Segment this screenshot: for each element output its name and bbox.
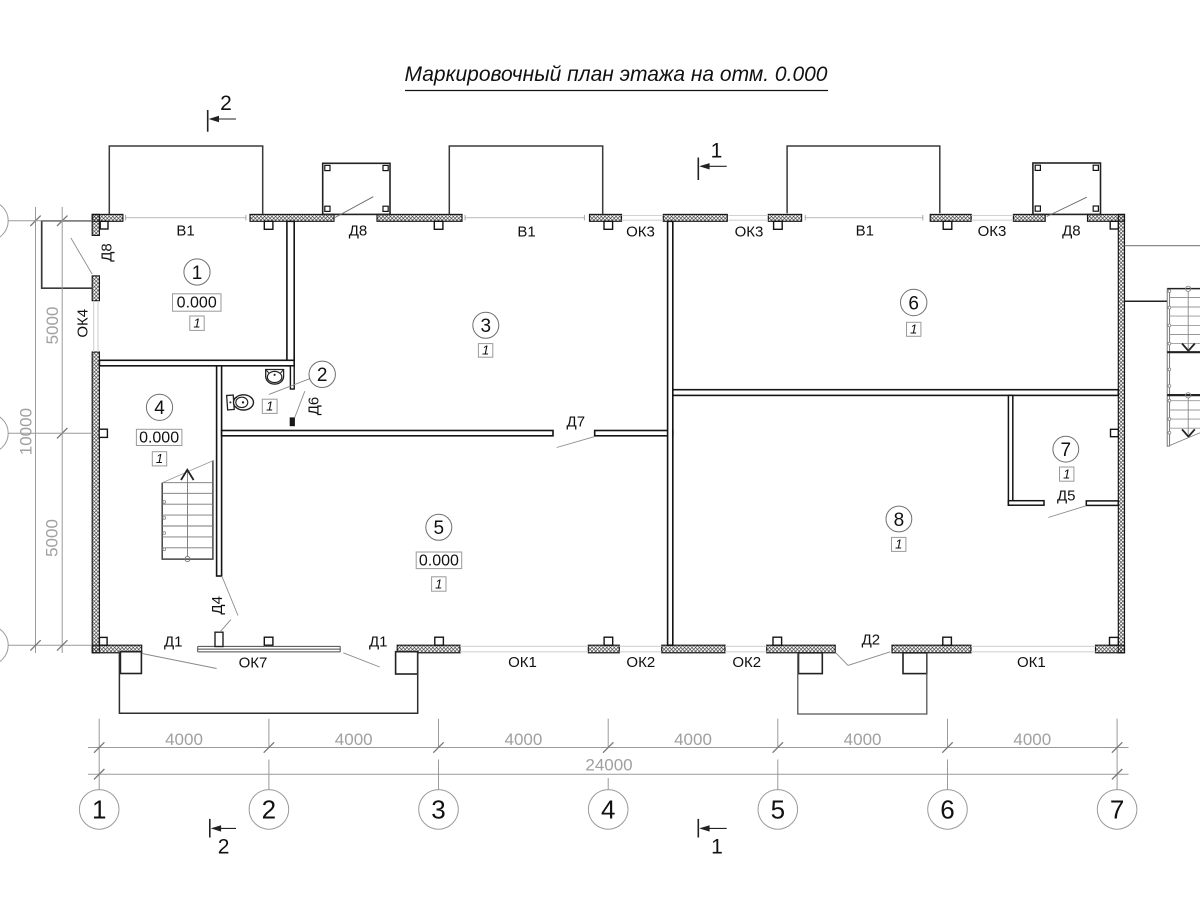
svg-text:Д5: Д5 xyxy=(1057,488,1076,505)
svg-text:1: 1 xyxy=(711,140,723,163)
svg-text:5000: 5000 xyxy=(43,307,62,345)
svg-text:1: 1 xyxy=(895,537,902,552)
svg-text:В1: В1 xyxy=(176,223,194,240)
svg-text:4000: 4000 xyxy=(335,730,373,749)
svg-text:1: 1 xyxy=(193,316,200,331)
svg-text:1: 1 xyxy=(92,795,106,825)
svg-text:5000: 5000 xyxy=(43,519,62,557)
svg-text:Д1: Д1 xyxy=(369,634,388,651)
svg-text:Д8: Д8 xyxy=(1062,223,1081,240)
svg-text:ОК1: ОК1 xyxy=(1017,654,1046,671)
svg-text:1: 1 xyxy=(910,322,917,337)
svg-text:2: 2 xyxy=(317,365,328,386)
svg-text:ОК3: ОК3 xyxy=(626,224,655,241)
svg-text:3: 3 xyxy=(481,316,492,337)
svg-text:4000: 4000 xyxy=(165,730,203,749)
svg-text:2: 2 xyxy=(262,795,276,825)
svg-text:5: 5 xyxy=(771,795,785,825)
svg-text:1: 1 xyxy=(1063,466,1070,481)
svg-text:4: 4 xyxy=(154,398,165,419)
svg-text:8: 8 xyxy=(894,510,905,531)
svg-text:Д8: Д8 xyxy=(349,223,368,240)
svg-text:Маркировочный план этажа на от: Маркировочный план этажа на отм. 0.000 xyxy=(405,63,828,86)
svg-text:Д4: Д4 xyxy=(209,596,226,615)
svg-text:ОК3: ОК3 xyxy=(978,223,1007,240)
svg-text:4000: 4000 xyxy=(1013,730,1051,749)
svg-text:ОК1: ОК1 xyxy=(508,654,537,671)
svg-text:3: 3 xyxy=(431,795,445,825)
svg-text:Д8: Д8 xyxy=(99,243,116,262)
svg-text:Д2: Д2 xyxy=(862,632,881,649)
svg-text:6: 6 xyxy=(940,795,954,825)
svg-text:7: 7 xyxy=(1061,440,1072,461)
svg-text:1: 1 xyxy=(482,343,489,358)
svg-text:0.000: 0.000 xyxy=(419,552,459,569)
svg-text:1: 1 xyxy=(711,836,723,859)
svg-text:4000: 4000 xyxy=(504,730,542,749)
svg-text:Д6: Д6 xyxy=(306,397,323,416)
svg-text:1: 1 xyxy=(435,576,442,591)
svg-text:2: 2 xyxy=(220,92,232,115)
svg-text:В1: В1 xyxy=(856,223,874,240)
svg-text:24000: 24000 xyxy=(585,755,632,774)
svg-text:1: 1 xyxy=(156,451,163,466)
svg-text:ОК2: ОК2 xyxy=(732,654,761,671)
svg-text:4000: 4000 xyxy=(674,730,712,749)
svg-text:0.000: 0.000 xyxy=(139,429,179,446)
svg-text:В1: В1 xyxy=(517,224,535,241)
svg-text:ОК2: ОК2 xyxy=(626,654,655,671)
svg-text:6: 6 xyxy=(908,293,919,314)
svg-text:ОК7: ОК7 xyxy=(239,655,268,672)
svg-text:5: 5 xyxy=(434,518,445,539)
svg-text:1: 1 xyxy=(266,399,273,414)
svg-text:Д7: Д7 xyxy=(567,414,586,431)
svg-text:Д1: Д1 xyxy=(164,634,183,651)
svg-text:7: 7 xyxy=(1110,795,1124,825)
svg-text:2: 2 xyxy=(218,836,230,859)
svg-text:ОК4: ОК4 xyxy=(74,309,91,338)
svg-text:4: 4 xyxy=(601,795,615,825)
svg-text:1: 1 xyxy=(192,263,203,284)
svg-text:ОК3: ОК3 xyxy=(735,224,764,241)
svg-text:0.000: 0.000 xyxy=(177,295,217,312)
svg-text:4000: 4000 xyxy=(844,730,882,749)
svg-text:10000: 10000 xyxy=(17,408,36,455)
